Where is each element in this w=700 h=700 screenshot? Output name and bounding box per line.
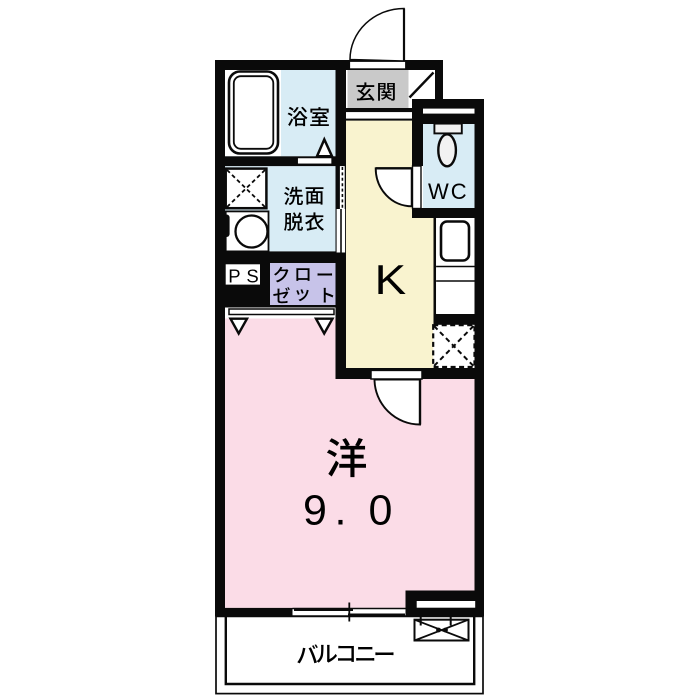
svg-text:WC: WC [428,179,469,204]
svg-text:9: 9 [303,487,327,535]
svg-text:.: . [335,487,347,535]
svg-text:K: K [375,257,407,304]
svg-text:PS: PS [228,266,264,287]
svg-text:0: 0 [369,487,393,535]
